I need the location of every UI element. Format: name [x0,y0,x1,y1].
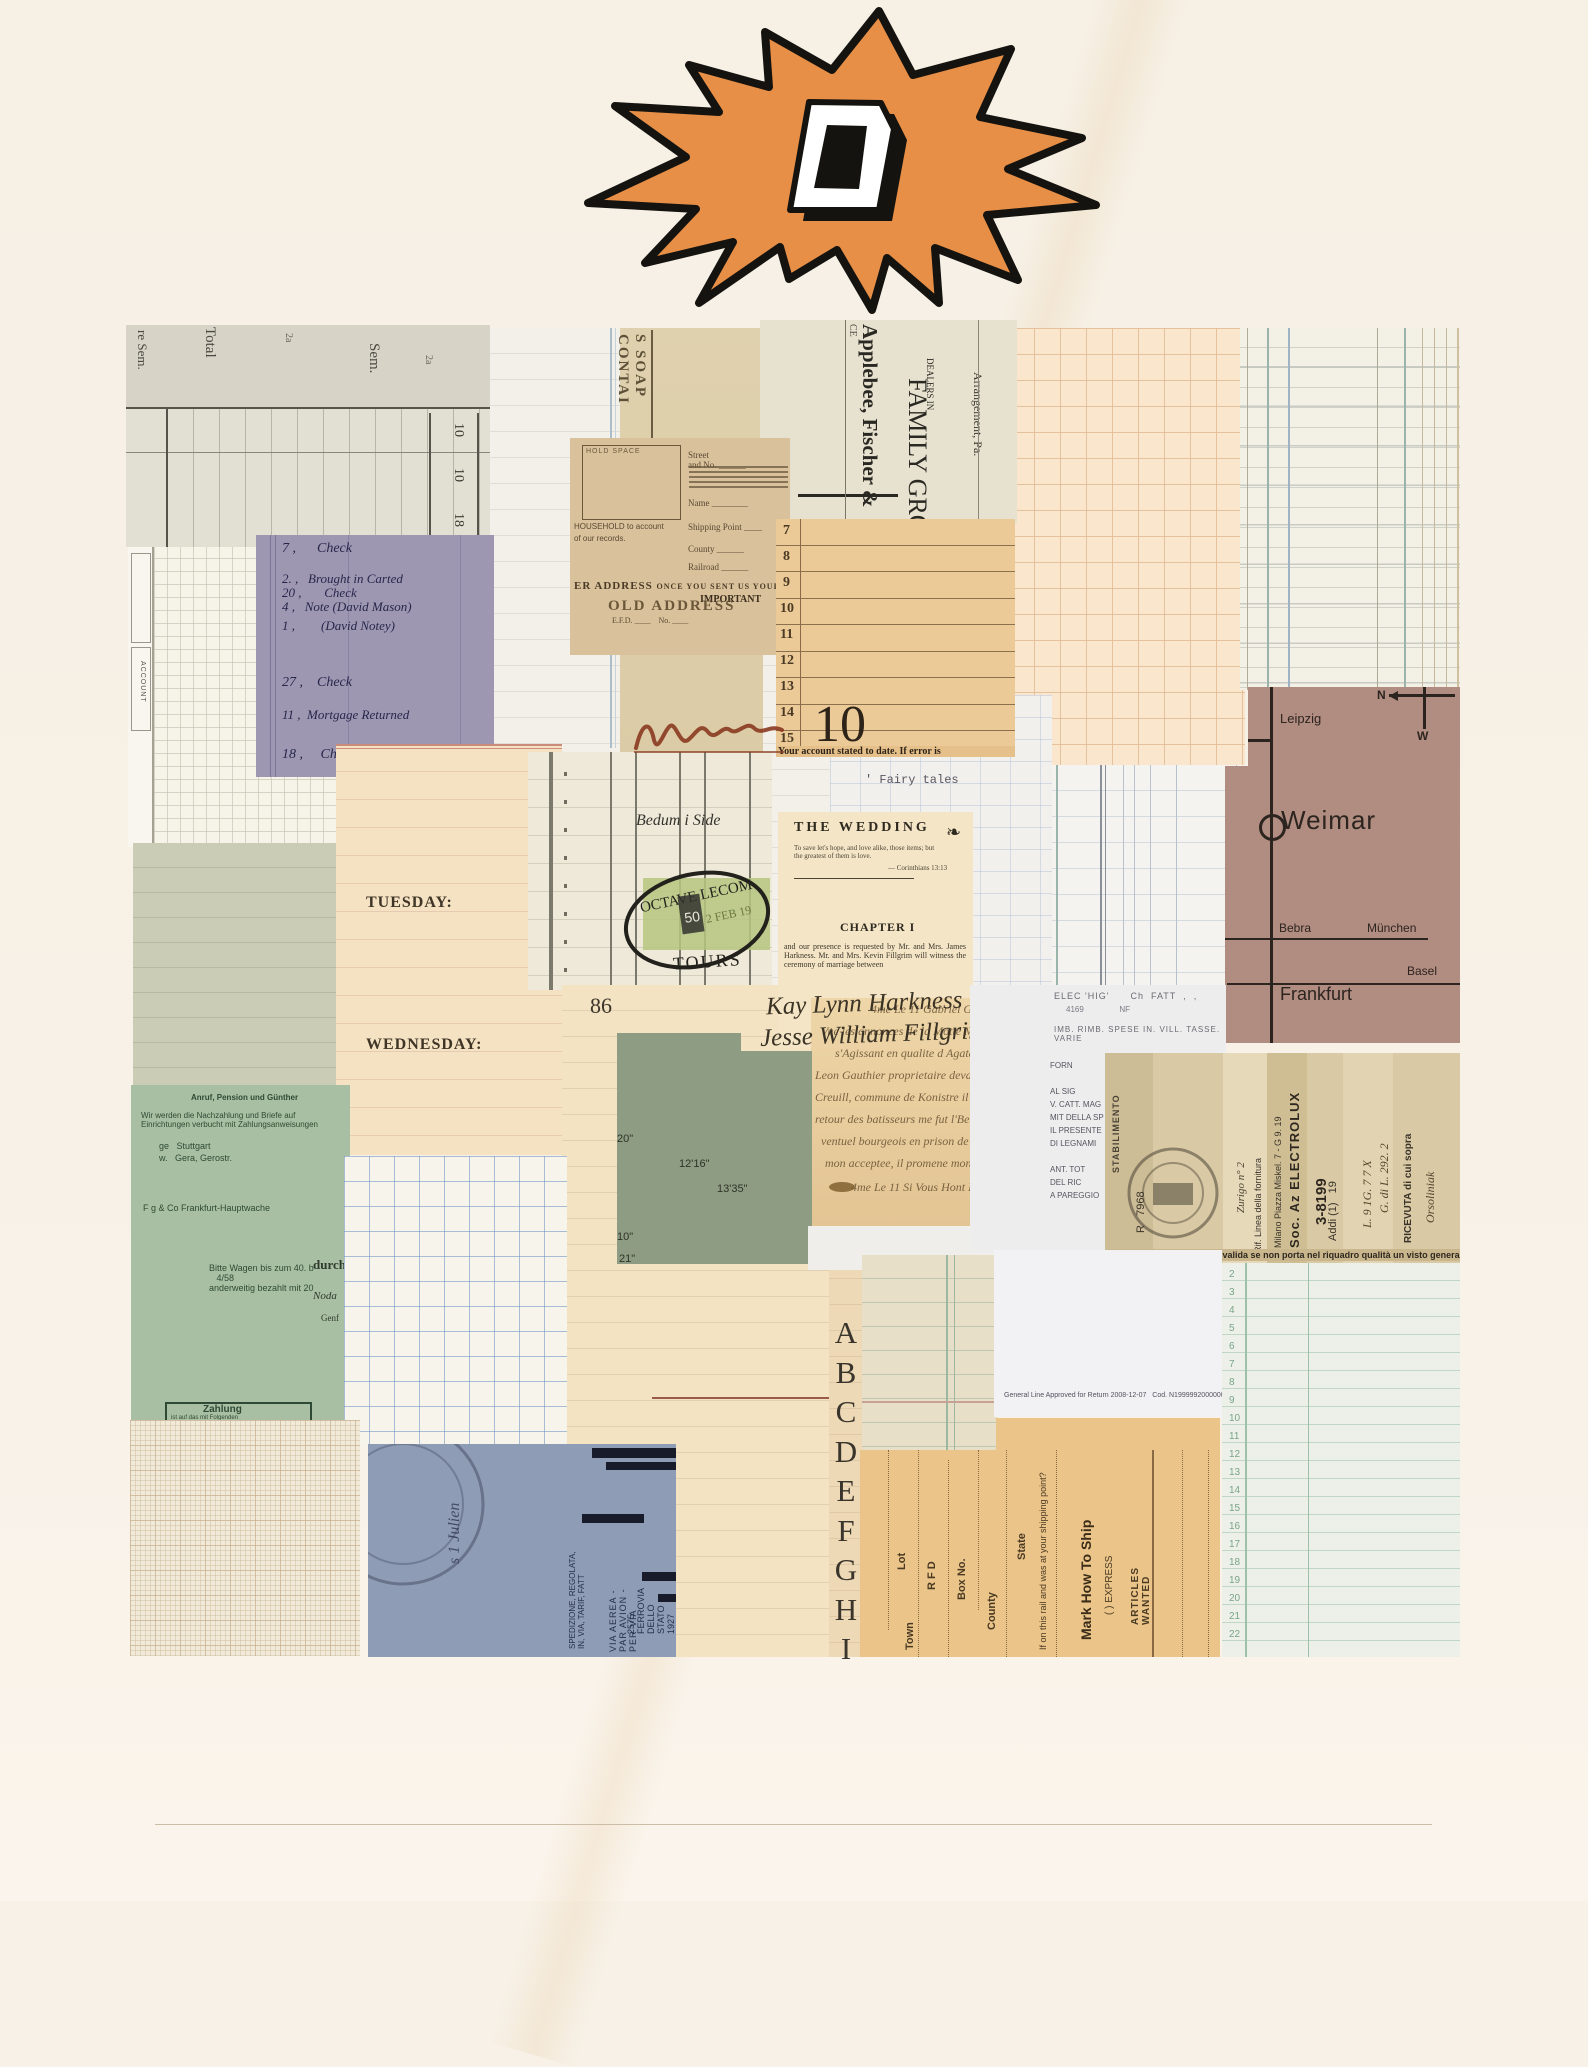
svg-text:TOURS: TOURS [672,949,742,974]
svg-text:50: 50 [683,908,701,926]
